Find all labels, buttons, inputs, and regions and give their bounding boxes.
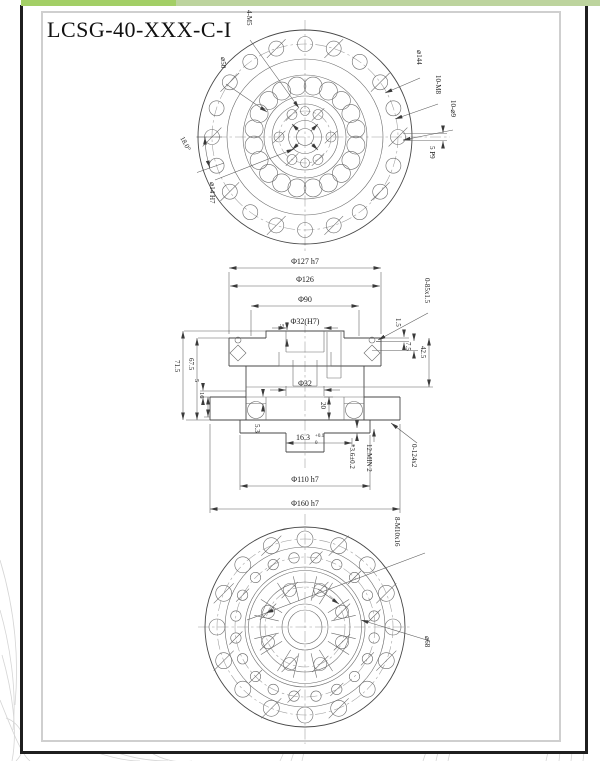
- dim-20: 20: [319, 402, 327, 410]
- dim-d90: Φ90: [298, 295, 312, 304]
- dim-d32h7: Φ32(H7): [291, 317, 320, 326]
- dim-10d9: 10-⌀9: [449, 100, 457, 118]
- dim-d160h7: Φ160 h7: [291, 499, 319, 508]
- dim-67-5: 67.5: [187, 358, 195, 371]
- dim-16-3-tol-up: +0.1: [315, 434, 325, 439]
- section-view: Φ127 h7 Φ126 Φ90 Φ32(H7) 5 0-85x1.5 1.5 …: [173, 257, 433, 513]
- dim-d50: ⌀50: [219, 57, 227, 69]
- dim-oring-85: 0-85x1.5: [423, 278, 431, 304]
- dim-8m10x16: 8-M10x16: [393, 517, 401, 547]
- dim-16-3-tol-dn: 0: [315, 441, 318, 446]
- dim-left-16: 16: [198, 392, 205, 399]
- dim-12-min-2: 12:MIN 2: [365, 444, 373, 472]
- dim-d32: Φ32: [298, 379, 312, 388]
- dim-7-5: 7.5: [404, 342, 412, 351]
- dim-angle-18: 18.0°: [178, 135, 192, 152]
- dim-d68: ⌀68: [423, 636, 431, 648]
- drawing-canvas: 4-M5 ⌀50 ⌀144 10-M8 10-⌀9 5 P9 18.0° ⌀14…: [0, 0, 600, 761]
- dim-4m5: 4-M5: [245, 10, 253, 26]
- dim-d127h7: Φ127 h7: [291, 257, 319, 266]
- dim-key-5p9: 5 P9: [428, 146, 436, 159]
- dim-d126: Φ126: [296, 275, 314, 284]
- dim-left-5: 5: [193, 379, 200, 382]
- dim-d110h7: Φ110 h7: [291, 475, 319, 484]
- dim-10m8: 10-M8: [434, 75, 442, 95]
- dim-16-3: 16.3: [296, 433, 310, 442]
- dim-d144: ⌀144: [415, 50, 423, 65]
- dim-3-6: *3.6±0.2: [348, 444, 356, 469]
- dim-71-5: 71.5: [173, 360, 181, 373]
- dim-boss-5: 5: [278, 324, 285, 327]
- bottom-view: 8-M10x16 ⌀68: [198, 514, 431, 744]
- dim-bore-d14h7: ⌀14 H7: [208, 182, 216, 204]
- dim-1-5: 1.5: [394, 318, 402, 327]
- dim-42-5: 42.5: [419, 346, 427, 359]
- dim-5-3: 5.3: [253, 424, 261, 433]
- dim-oring-124: 0-124x2: [410, 444, 418, 468]
- screen: LCSG-40-XXX-C-I: [0, 0, 600, 761]
- top-view: 4-M5 ⌀50 ⌀144 10-M8 10-⌀9 5 P9 18.0° ⌀14…: [178, 10, 457, 252]
